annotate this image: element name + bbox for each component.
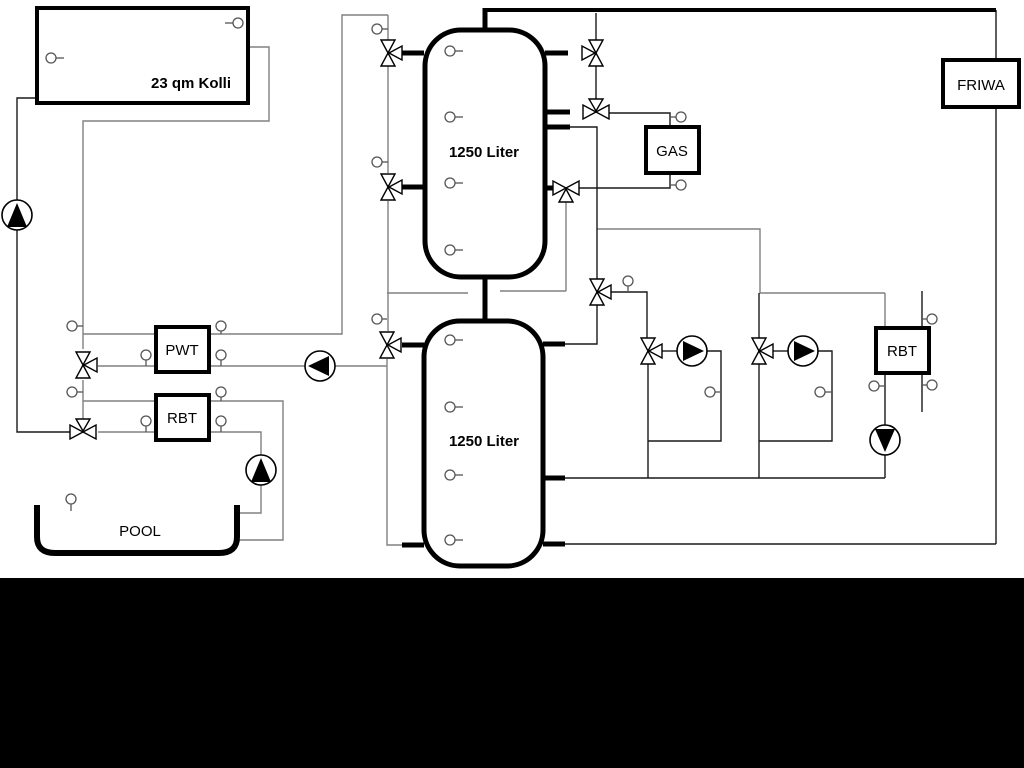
hydraulic-schematic: 23 qm Kolli 1250 Liter 1250 Liter PWT RB… bbox=[0, 0, 1024, 768]
valve-tank2-left bbox=[380, 332, 401, 358]
rbt-right-label: RBT bbox=[887, 343, 917, 360]
valve-solar-pool bbox=[70, 419, 96, 439]
valve-distribution bbox=[590, 279, 611, 305]
pool-label: POOL bbox=[119, 523, 161, 540]
valve-tank1-left-top bbox=[381, 40, 402, 66]
schematic-viewer: 23 qm Kolli 1250 Liter 1250 Liter PWT RB… bbox=[0, 0, 1024, 768]
valve-circuit1-mixer bbox=[641, 338, 662, 364]
collector-label: 23 qm Kolli bbox=[151, 75, 231, 92]
gas-label: GAS bbox=[656, 143, 688, 160]
bottom-black-band bbox=[0, 578, 1024, 768]
pump-circuit1 bbox=[677, 336, 707, 366]
pump-circuit2 bbox=[788, 336, 818, 366]
lower-tank-label: 1250 Liter bbox=[449, 433, 519, 450]
upper-tank-label: 1250 Liter bbox=[449, 144, 519, 161]
friwa-label: FRIWA bbox=[957, 77, 1005, 94]
valve-tank1-left-bottom bbox=[381, 174, 402, 200]
pump-rbt-right bbox=[870, 425, 900, 455]
valve-gas-return bbox=[553, 181, 579, 202]
pump-pool bbox=[246, 455, 276, 485]
rbt-left-label: RBT bbox=[167, 410, 197, 427]
valve-gas-supply bbox=[583, 99, 609, 119]
pwt-label: PWT bbox=[165, 342, 198, 359]
pump-pwt bbox=[305, 351, 335, 381]
valve-circuit2-mixer bbox=[752, 338, 773, 364]
pump-solar bbox=[2, 200, 32, 230]
valve-tank1-top-right bbox=[582, 40, 603, 66]
valve-solar-pwt bbox=[76, 352, 97, 378]
